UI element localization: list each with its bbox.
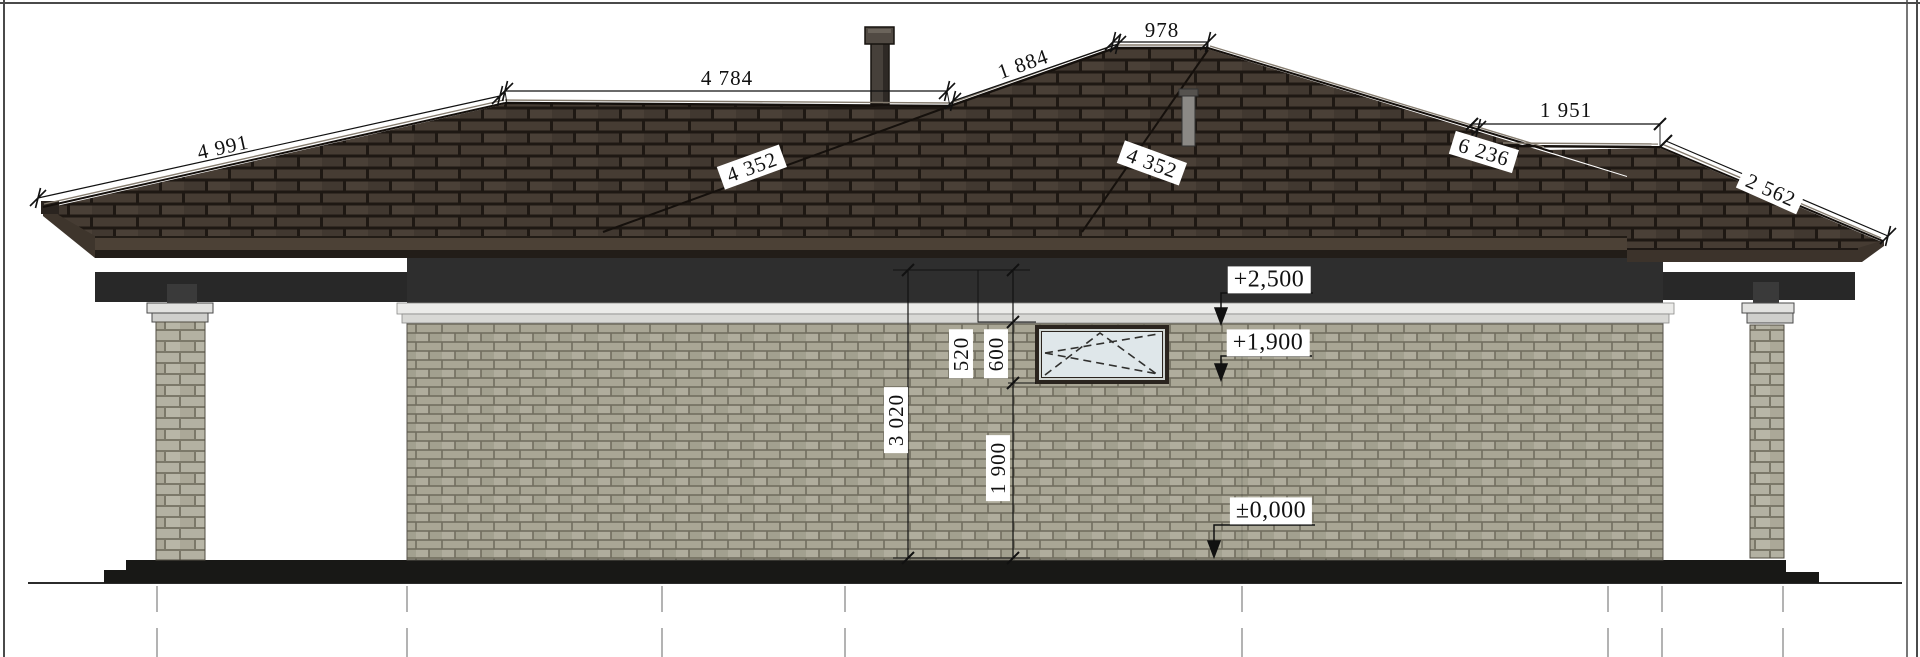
level-window-head: +1,900 [1227, 329, 1310, 356]
left-column [147, 284, 213, 560]
right-column [1742, 282, 1794, 558]
level-ground: ±0,000 [1230, 497, 1312, 524]
cornice-trim [397, 303, 1674, 323]
dim-left-ridge: 4 784 [701, 67, 753, 89]
chimney [865, 27, 894, 104]
dim-right-ridge: 1 951 [1540, 99, 1592, 121]
roof [41, 45, 1884, 262]
level-eave: +2,500 [1228, 266, 1311, 293]
main-roof [43, 49, 1627, 237]
soffit [95, 257, 1855, 303]
dim-wall-height: 3 020 [884, 387, 908, 453]
dim-eave-to-window: 520 [949, 330, 973, 379]
elevation-drawing [0, 0, 1920, 657]
elevation-canvas: 4 991 4 784 1 884 978 4 352 4 352 6 236 … [0, 0, 1920, 657]
vent-pipe [1179, 89, 1198, 146]
dim-window-sill: 1 900 [986, 435, 1010, 501]
grid-lines [157, 586, 1783, 657]
plinth [104, 560, 1819, 583]
window [1035, 325, 1169, 384]
dim-middle-ridge: 978 [1145, 19, 1180, 41]
dim-window-height: 600 [984, 330, 1008, 379]
